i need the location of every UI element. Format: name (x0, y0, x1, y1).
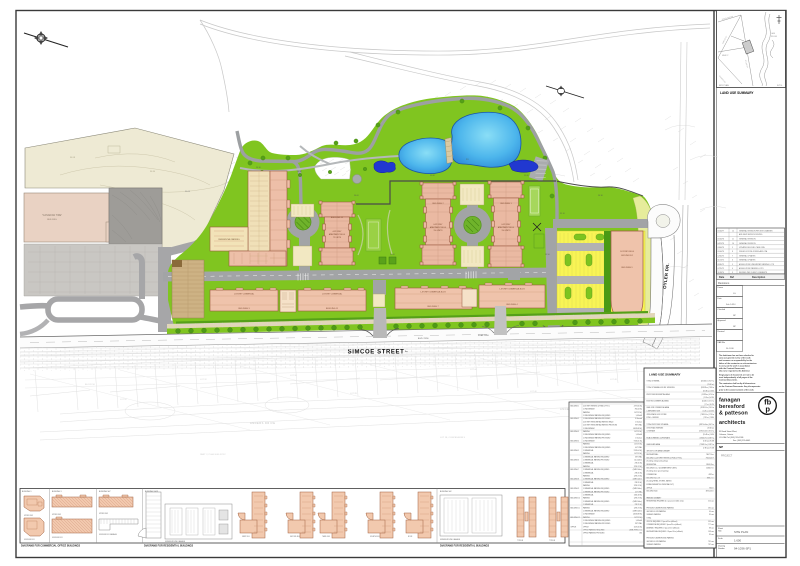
svg-text:ROOF: ROOF (408, 536, 412, 538)
svg-text:APARTMENT BLDG: APARTMENT BLDG (498, 226, 515, 229)
svg-text:BUILDING 1&2: BUILDING 1&2 (440, 491, 452, 493)
svg-text:Revised: Revised (718, 331, 725, 333)
svg-text:BUILDING 6: BUILDING 6 (571, 460, 580, 462)
svg-text:Title: Title (718, 530, 722, 533)
svg-text:1:600: 1:600 (734, 539, 741, 543)
svg-text:9135.01 SQ: 9135.01 SQ (634, 441, 643, 443)
svg-text:BUILDING 3: BUILDING 3 (52, 491, 61, 493)
svg-text:14035.88 SQ: 14035.88 SQ (633, 428, 643, 430)
svg-text:8: 8 (732, 251, 733, 253)
svg-text:(9.58 ac) 29.098: (9.58 ac) 29.098 (703, 441, 714, 443)
svg-text:BUILDING 9&10: BUILDING 9&10 (647, 491, 658, 493)
svg-text:TYP FLR: TYP FLR (549, 540, 556, 542)
svg-text:BUILDING 1: BUILDING 1 (500, 203, 512, 205)
svg-text:Oshawa, Ontario: Oshawa, Ontario (719, 433, 733, 436)
svg-text:RIDGES: RIDGES (771, 36, 777, 38)
svg-text:CONDOMINIUM: CONDOMINIUM (583, 514, 595, 516)
svg-text:UAB File: UAB File (718, 341, 725, 344)
svg-text:780.44 SQ: 780.44 SQ (635, 409, 643, 411)
svg-text:BUILDING 11: BUILDING 11 (571, 507, 580, 509)
svg-text:11: 11 (732, 239, 734, 241)
svg-text:35.80: 35.80 (524, 175, 529, 177)
svg-text:36.30: 36.30 (297, 171, 302, 173)
svg-text:used independently of all page: used independently of all pages of the (719, 376, 753, 379)
svg-text:4-STOREY: 4-STOREY (333, 231, 343, 233)
svg-text:36.00: 36.00 (354, 195, 359, 197)
svg-text:L1G 1A6 Tel: (905) 555-1936: L1G 1A6 Tel: (905) 555-1936 (719, 436, 743, 439)
svg-text:ROAD 23700: ROAD 23700 (478, 334, 489, 337)
svg-text:9: 9 (732, 247, 733, 249)
svg-text:Fax: (905) 555-4445: Fax: (905) 555-4445 (733, 440, 750, 442)
svg-text:4-STOREY RENTED & PUBLIC POOL: 4-STOREY RENTED & PUBLIC POOL (583, 406, 610, 408)
svg-text:150 UNITS: 150 UNITS (502, 230, 512, 232)
svg-text:CONDOMINIUM: CONDOMINIUM (583, 409, 595, 411)
svg-text:5: 5 (732, 264, 733, 266)
svg-text:LOT 30: LOT 30 (290, 375, 298, 377)
svg-text:ADDED WORK UNDERSTAT PARKING L: ADDED WORK UNDERSTAT PARKING LOTS (739, 263, 775, 266)
svg-text:NP: NP (719, 445, 723, 449)
svg-text:BUILDING 9: BUILDING 9 (621, 267, 633, 269)
svg-text:The contractor shall verify al: The contractor shall verify all dimensio… (719, 382, 755, 385)
svg-text:(19.48 ac) 100%: (19.48 ac) 100% (703, 434, 715, 436)
svg-text:94-1036: 94-1036 (726, 348, 734, 350)
svg-text:GENERAL REVISION PER SITE CHAN: GENERAL REVISION PER SITE CHANGES (739, 229, 773, 232)
svg-text:36.36: 36.36 (598, 195, 603, 197)
svg-text:1,020x48: 1,020x48 (636, 434, 643, 436)
svg-text:(7.88 ac) 27.598: (7.88 ac) 27.598 (703, 447, 714, 449)
svg-text:BUILDING 12: BUILDING 12 (571, 517, 581, 519)
svg-text:JG: JG (733, 293, 736, 295)
svg-text:4770.06 SQ: 4770.06 SQ (634, 406, 643, 408)
svg-text:Drawn: Drawn (718, 286, 723, 289)
svg-text:prior to the commencement of t: prior to the commencement of the work. (719, 388, 755, 391)
svg-text:APARTMENT BLDG: APARTMENT BLDG (430, 226, 447, 229)
svg-text:01/26/77: 01/26/77 (718, 230, 725, 232)
svg-text:6: 6 (732, 260, 733, 262)
svg-text:UPPER FLR: UPPER FLR (99, 513, 109, 515)
svg-text:BUILDING 7: BUILDING 7 (571, 469, 580, 471)
svg-text:BUILDING 3: BUILDING 3 (571, 431, 580, 433)
svg-text:3: 3 (732, 272, 733, 274)
svg-text:LOT 46: LOT 46 (530, 391, 538, 393)
svg-text:1296.74 SQ: 1296.74 SQ (634, 507, 643, 509)
svg-text:10: 10 (732, 243, 734, 245)
svg-text:35.16: 35.16 (560, 213, 565, 215)
svg-text:BUILDING 9: BUILDING 9 (571, 488, 580, 490)
svg-text:SITE PLAN: SITE PLAN (734, 530, 748, 534)
svg-text:(19.08 ac): (19.08 ac) (707, 427, 714, 429)
svg-text:"CANADIAN TIRE": "CANADIAN TIRE" (42, 214, 62, 217)
svg-text:Singe pages of documents are n: Singe pages of documents are not to be (719, 373, 754, 376)
svg-text:238.15 SQ: 238.15 SQ (635, 472, 643, 474)
svg-text:BUILDING 8: BUILDING 8 (571, 479, 580, 481)
svg-text:150 UNITS: 150 UNITS (434, 230, 444, 232)
svg-text:107274 SQ: 107274 SQ (634, 412, 643, 414)
svg-text:95 Bond Street West,: 95 Bond Street West, (719, 430, 737, 433)
svg-text:KEY PLAN: KEY PLAN (719, 84, 729, 87)
svg-text:ADDED WORK PARKING LOTS: ADDED WORK PARKING LOTS (739, 267, 764, 270)
svg-text:12/05/75: 12/05/75 (718, 255, 725, 257)
svg-text:GENERAL UPDATES: GENERAL UPDATES (739, 259, 756, 262)
svg-text:7: 7 (732, 255, 733, 257)
svg-text:and assumes no responsibility: and assumes no responsibility for the (719, 359, 752, 362)
svg-text:p: p (765, 405, 770, 414)
svg-text:Number: Number (718, 547, 725, 550)
svg-text:11/28/74: 11/28/74 (718, 272, 725, 274)
svg-text:1296.74 SQ: 1296.74 SQ (634, 498, 643, 500)
svg-text:& patteson: & patteson (719, 411, 748, 417)
svg-text:TYP FLR: TYP FLR (517, 540, 524, 542)
svg-text:(23.08 ac): (23.08 ac) (707, 384, 714, 386)
svg-text:36.58: 36.58 (70, 157, 76, 159)
svg-text:Feb 14/94: Feb 14/94 (726, 304, 736, 306)
svg-text:8m: 8m (405, 351, 408, 353)
svg-text:36.30: 36.30 (256, 167, 261, 169)
svg-text:GENERAL REVISION: GENERAL REVISION (739, 242, 756, 245)
svg-text:Revisions: Revisions (718, 281, 730, 285)
svg-text:LAND USE SUMMARY: LAND USE SUMMARY (720, 91, 754, 95)
svg-text:1-STOREY COMMERCIAL: 1-STOREY COMMERCIAL (234, 293, 254, 296)
svg-text:beresford: beresford (719, 404, 745, 410)
svg-text:BUILDING 4: BUILDING 4 (571, 441, 580, 443)
svg-text:BUILDING 11: BUILDING 11 (326, 308, 339, 310)
svg-text:LAND USE SUMMARY: LAND USE SUMMARY (649, 373, 681, 377)
svg-text:The drafstman has not been che: The drafstman has not been checked to (719, 354, 755, 357)
svg-text:failure of the contractor or s: failure of the contractor or sub-contrac… (719, 362, 757, 365)
svg-text:1-STOREY COMMERCIAL: 1-STOREY COMMERCIAL (322, 293, 342, 296)
svg-text:1,020x48: 1,020x48 (636, 415, 643, 417)
svg-text:35.50: 35.50 (545, 254, 550, 256)
svg-text:1306.18 SQ: 1306.18 SQ (634, 495, 643, 497)
svg-text:REVISED PER CLIENT COMMENTS: REVISED PER CLIENT COMMENTS (739, 272, 768, 274)
svg-text:BUILDING 12: BUILDING 12 (331, 217, 344, 219)
svg-text:BUILDING 2: BUILDING 2 (571, 418, 580, 420)
svg-text:94-1036-SP1: 94-1036-SP1 (734, 547, 751, 551)
svg-text:BLOCK 58: BLOCK 58 (85, 384, 95, 386)
svg-text:186: 186 (639, 533, 642, 535)
svg-text:BUILDING 2: BUILDING 2 (432, 203, 444, 205)
svg-text:107274 SQ: 107274 SQ (634, 444, 643, 446)
svg-text:DIAGRAMS FOR COMMERCIAL OFFICE: DIAGRAMS FOR COMMERCIAL OFFICE BUILDINGS (21, 545, 80, 548)
svg-text:OFFICE: OFFICE (583, 526, 589, 528)
svg-text:to carry out the work in accor: to carry out the work in accordance (719, 364, 750, 367)
svg-text:6-STOREY: 6-STOREY (502, 224, 512, 226)
svg-text:04/21/76: 04/21/76 (718, 243, 725, 245)
svg-text:UPPER FLR: UPPER FLR (52, 514, 62, 516)
svg-text:107274 SQ: 107274 SQ (634, 517, 643, 519)
svg-text:GENERAL REVISION: GENERAL REVISION (739, 238, 756, 241)
svg-text:APARTMENT BLDG: APARTMENT BLDG (329, 233, 346, 236)
svg-text:BUILDING 7: BUILDING 7 (427, 306, 439, 308)
svg-text:35.80: 35.80 (430, 175, 435, 177)
svg-text:RESIDENTIAL PARKING: RESIDENTIAL PARKING (218, 238, 240, 241)
svg-text:ISSUED FOR RE-ZONING AND OPA: ISSUED FOR RE-ZONING AND OPA (739, 250, 768, 253)
svg-text:N.T.S.: N.T.S. (777, 85, 783, 87)
svg-text:LOT 28: LOT 28 (350, 393, 358, 395)
svg-text:1,020x48: 1,020x48 (636, 520, 643, 522)
svg-text:OFFICE: OFFICE (571, 526, 577, 528)
svg-text:LOT 52: LOT 52 (120, 399, 128, 401)
svg-text:LOT 32: LOT 32 (200, 379, 208, 381)
svg-text:03/06/76: 03/06/76 (718, 247, 725, 249)
svg-text:Date: Date (719, 276, 725, 279)
svg-text:72 UNITS: 72 UNITS (333, 237, 342, 239)
svg-text:FOURTH FLR: FOURTH FLR (370, 536, 380, 538)
svg-text:BUILDING 10: BUILDING 10 (571, 498, 581, 500)
svg-text:14035.88 SQ: 14035.88 SQ (633, 514, 643, 516)
svg-text:who to be reported to the Arch: who to be reported to the Architect (719, 370, 750, 373)
svg-text:& IMPLEMENT USE: & IMPLEMENT USE (647, 411, 661, 413)
svg-text:GROUND FLR: GROUND FLR (24, 539, 35, 541)
svg-text:DIAGRAMS FOR RESIDENTIAL BUILD: DIAGRAMS FOR RESIDENTIAL BUILDINGS (144, 545, 194, 548)
svg-text:UPDATED BUILDING 7 AND SPA: UPDATED BUILDING 7 AND SPA (739, 246, 765, 249)
svg-text:BLVD. 23700: BLVD. 23700 (418, 338, 429, 340)
svg-text:BUILDING 1: BUILDING 1 (571, 406, 580, 408)
svg-text:fanagan: fanagan (719, 398, 740, 404)
svg-text:Scale: Scale (718, 538, 723, 540)
svg-text:12: 12 (732, 230, 734, 232)
svg-text:9135.04 SQ: 9135.04 SQ (634, 450, 643, 452)
svg-text:THIRD FLR: THIRD FLR (322, 536, 331, 538)
svg-text:architects: architects (719, 420, 745, 426)
svg-text:FIRST FLR: FIRST FLR (242, 536, 250, 538)
svg-text:01/26/76: 01/26/76 (718, 239, 725, 241)
svg-text:BUILDING 5&7: BUILDING 5&7 (99, 491, 111, 493)
svg-text:LOT 44: LOT 44 (470, 369, 478, 371)
svg-text:107274 SQ: 107274 SQ (634, 431, 643, 433)
svg-text:BUILDING 3: BUILDING 3 (238, 308, 250, 310)
svg-text:Approved: Approved (718, 319, 726, 322)
svg-text:CONDOMINIUM: CONDOMINIUM (583, 441, 595, 443)
svg-text:238.15 SQ: 238.15 SQ (635, 463, 643, 465)
svg-text:36.30: 36.30 (150, 171, 156, 173)
svg-text:1-STOREY COMMERCIAL BLDG: 1-STOREY COMMERCIAL BLDG (499, 288, 525, 291)
svg-text:35.50: 35.50 (390, 254, 395, 256)
svg-text:PART 2, PLAN 40R-XXXX: PART 2, PLAN 40R-XXXX (200, 453, 226, 456)
svg-text:AND NEW SERVICE DRIVING: AND NEW SERVICE DRIVING (739, 233, 763, 236)
svg-text:BUILDING: BUILDING (47, 219, 57, 221)
svg-text:LOT 48: LOT 48 (610, 379, 618, 381)
svg-text:(19.48 ac) 100%: (19.48 ac) 100% (703, 391, 715, 393)
svg-text:GROUND FLR: GROUND FLR (52, 537, 63, 539)
svg-text:238.15 SQ: 238.15 SQ (635, 482, 643, 484)
svg-text:LOT 18, CONCESSION 5: LOT 18, CONCESSION 5 (440, 437, 466, 439)
svg-text:UPPER FLR: UPPER FLR (24, 515, 34, 517)
svg-text:Ref: Ref (730, 276, 734, 279)
svg-text:11/21/75: 11/21/75 (718, 260, 725, 262)
svg-text:Checked: Checked (718, 309, 725, 311)
svg-text:07/25/75: 07/25/75 (718, 268, 725, 270)
svg-text:01/06/76: 01/06/76 (718, 251, 725, 253)
svg-text:GROUND FLR: GROUND FLR (621, 255, 634, 257)
svg-text:4: 4 (732, 268, 733, 270)
svg-text:DIAGRAMS FOR RESIDENTIAL BUILD: DIAGRAMS FOR RESIDENTIAL BUILDINGS (440, 545, 490, 548)
svg-text:BUILDING 3,4,5,7,8: BUILDING 3,4,5,7,8 (647, 477, 661, 479)
svg-text:PROJECT: PROJECT (721, 455, 733, 458)
svg-text:Date: Date (718, 297, 722, 300)
svg-text:6-STOREY: 6-STOREY (434, 224, 444, 226)
svg-text:BUILDING 5: BUILDING 5 (571, 450, 580, 452)
svg-text:carry out general review of th: carry out general review of the work (719, 357, 752, 360)
svg-text:ANDERS DRIVE: ANDERS DRIVE (250, 421, 275, 425)
svg-text:BUILDING 9: BUILDING 9 (22, 491, 31, 493)
svg-text:1-STOREY COMMERCIAL BLDG: 1-STOREY COMMERCIAL BLDG (420, 291, 446, 294)
svg-text:with the Contract Documents,: with the Contract Documents, (719, 367, 746, 370)
svg-text:(1.28 ac) 24.05%: (1.28 ac) 24.05% (703, 411, 715, 413)
svg-text:SECOND FLR: SECOND FLR (290, 536, 301, 538)
svg-text:09/30/75: 09/30/75 (718, 264, 725, 266)
svg-text:GENERAL UPDATES: GENERAL UPDATES (739, 254, 756, 257)
svg-text:BUILDING 4: BUILDING 4 (506, 304, 518, 306)
svg-text:on the Contract Documents. An: on the Contract Documents. Any discrepan… (719, 385, 760, 388)
svg-text:1296.74 SQ: 1296.74 SQ (634, 476, 643, 478)
svg-text:1296.74 SQ: 1296.74 SQ (634, 485, 643, 487)
svg-text:Contract Documents.: Contract Documents. (719, 379, 738, 382)
svg-text:1074.06 SQ: 1074.06 SQ (634, 526, 643, 528)
svg-text:CONDOMINIUM: CONDOMINIUM (583, 428, 595, 430)
svg-text:36.00: 36.00 (185, 191, 191, 193)
svg-text:1-STOREY BLDG: 1-STOREY BLDG (620, 251, 635, 253)
svg-text:Description: Description (752, 276, 766, 279)
